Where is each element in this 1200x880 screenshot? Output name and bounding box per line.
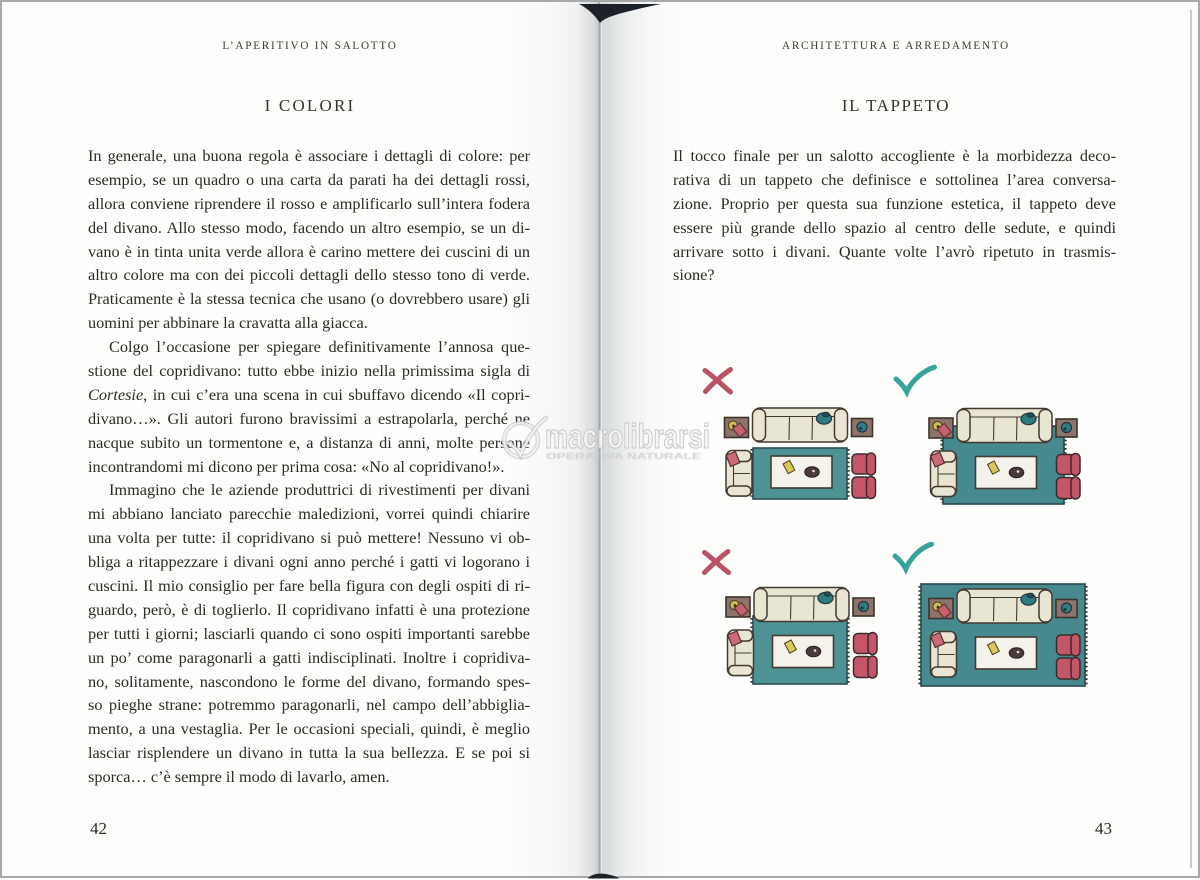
svg-text:macrolibrarsi: macrolibrarsi (545, 418, 710, 456)
svg-text:OPERATIVA NATURALE: OPERATIVA NATURALE (546, 452, 702, 461)
